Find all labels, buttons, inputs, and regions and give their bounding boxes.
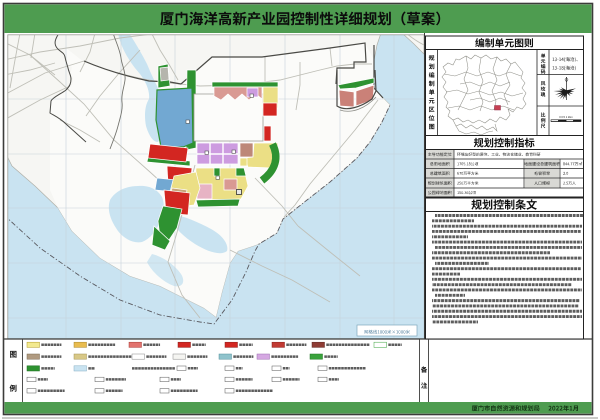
svg-text:0 0.5 1 2km: 0 0.5 1 2km xyxy=(559,115,573,119)
